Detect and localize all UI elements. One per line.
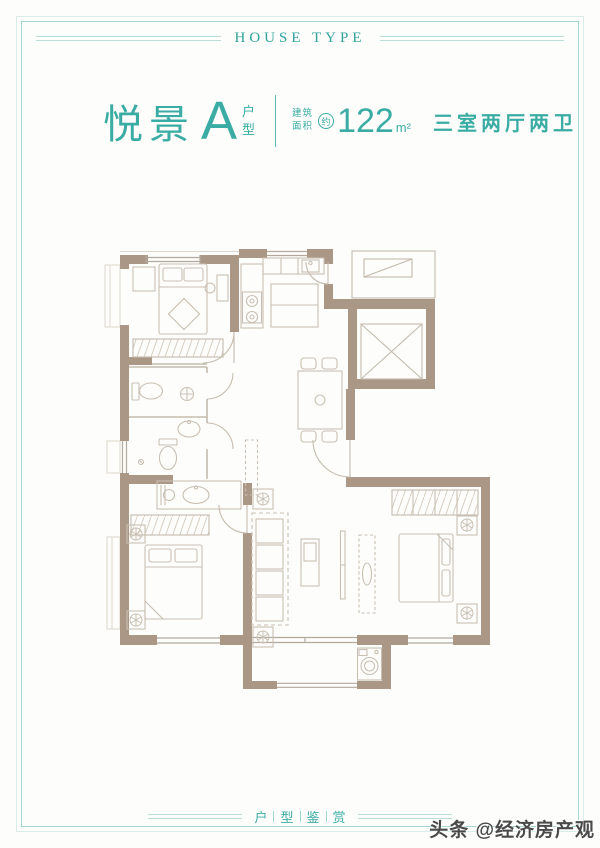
footer-char-4: 赏 [333,807,346,826]
walls [120,249,490,689]
title-divider [275,95,276,147]
area-label-bottom: 面积 [292,121,313,134]
equipment-platform [352,251,435,298]
footer-separator [273,811,274,822]
area-group: 建筑 面积 约 122 m² [292,104,411,138]
unit-char-2: 型 [242,122,255,138]
dining-area [298,358,342,442]
master-bedroom [359,490,478,623]
kitchen [241,258,324,328]
project-name: 悦景 [103,92,195,150]
area-label-top: 建筑 [292,108,313,121]
header-rule-left [36,36,221,41]
unit-char-1: 户 [242,104,255,120]
washing-machine [358,648,382,680]
area-value: 122 [337,104,394,138]
area-approx-badge: 约 [318,113,334,129]
title-block: 悦景 A 户 型 建筑 面积 约 122 m² 三室两厅两卫 [103,90,577,152]
unit-type-label: 户 型 [242,104,255,138]
footer-separator [326,811,327,822]
header: HOUSE TYPE [36,30,564,47]
bedroom-bottom-left [127,515,209,629]
footer-title: 户 型 鉴 赏 [254,807,345,826]
page-title: HOUSE TYPE [235,30,366,47]
footer: 户 型 鉴 赏 [148,807,452,826]
bathroom-main [139,421,201,470]
header-rule-right [380,36,565,41]
house-type-poster: HOUSE TYPE 悦景 A 户 型 建筑 面积 约 122 m² 三室两厅两… [0,0,600,848]
bedroom-top-left [133,264,228,357]
footer-char-2: 型 [280,807,293,826]
unit-letter: A [201,94,237,148]
area-unit: m² [396,120,411,135]
layout-description: 三室两厅两卫 [433,107,577,136]
watermark: 头条 @经济房产观 [429,815,595,842]
floorplan [95,237,505,707]
elevator [361,324,422,379]
bathroom-wc [132,383,194,401]
footer-separator [300,811,301,822]
footer-char-3: 鉴 [307,807,320,826]
washbasin-area [157,481,241,509]
balcony [358,648,382,680]
footer-rule-left [148,814,242,819]
area-label: 建筑 面积 [292,108,313,134]
footer-char-1: 户 [254,807,267,826]
